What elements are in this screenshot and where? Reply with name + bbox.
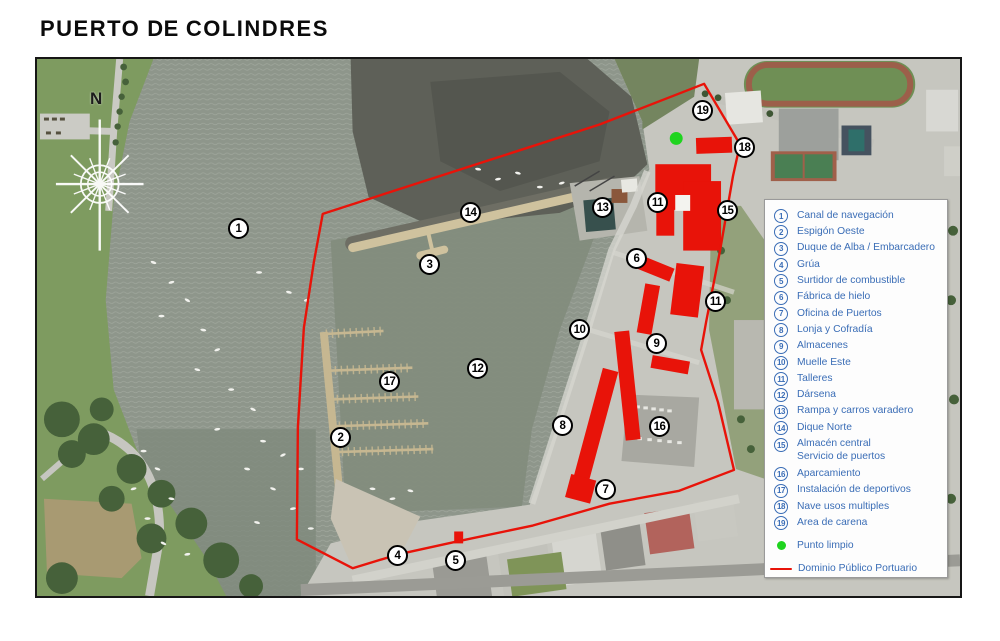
legend-item-label: Talleres (797, 373, 832, 386)
punto-limpio-icon (774, 541, 788, 550)
legend-items: 1Canal de navegación2Espigón Oeste3Duque… (774, 208, 941, 531)
legend-item-label: Almacén centralServicio de puertos (797, 438, 885, 463)
legend-item-19: 19Area de carena (774, 515, 941, 531)
legend-item-label: Dique Norte (797, 422, 852, 435)
legend-number-icon: 5 (774, 274, 788, 288)
legend-number-icon: 2 (774, 225, 788, 239)
legend-number-icon: 8 (774, 323, 788, 337)
title-part-2: DE (147, 16, 179, 41)
legend-item-label: Area de carena (797, 517, 867, 530)
legend-item-18: 18Nave usos multiples (774, 499, 941, 515)
legend-item-label: Lonja y Cofradía (797, 324, 873, 337)
legend-item-13: 13Rampa y carros varadero (774, 404, 941, 420)
legend-item-4: 4Grúa (774, 257, 941, 273)
legend-item-12: 12Dársena (774, 387, 941, 403)
legend-item-label: Grúa (797, 259, 820, 272)
legend-number-icon: 16 (774, 467, 788, 481)
legend-item-label: Duque de Alba / Embarcadero (797, 242, 935, 255)
legend-number-icon: 10 (774, 356, 788, 370)
legend-item-16: 16Aparcamiento (774, 466, 941, 482)
legend-number-icon: 9 (774, 340, 788, 354)
legend-item-14: 14Dique Norte (774, 420, 941, 436)
legend-number-icon: 12 (774, 388, 788, 402)
legend-item-6: 6Fábrica de hielo (774, 289, 941, 305)
legend-number-icon: 15 (774, 438, 788, 452)
legend-item-label: Instalación de deportivos (797, 484, 911, 497)
legend-item-label: Dársena (797, 389, 836, 402)
legend-number-icon: 11 (774, 372, 788, 386)
legend-item-label: Espigón Oeste (797, 226, 865, 239)
legend-item-label: Punto limpio (797, 540, 854, 553)
legend-item-8: 8Lonja y Cofradía (774, 322, 941, 338)
legend-number-icon: 14 (774, 421, 788, 435)
legend-item-label: Rampa y carros varadero (797, 405, 913, 418)
title-part-3: COLINDRES (186, 16, 329, 41)
legend-number-icon: 3 (774, 242, 788, 256)
legend-number-icon: 6 (774, 291, 788, 305)
punto-limpio-dot (670, 132, 683, 145)
red-line-icon (770, 568, 792, 571)
legend-number-icon: 13 (774, 405, 788, 419)
legend-number-icon: 17 (774, 484, 788, 498)
legend-number-icon: 19 (774, 516, 788, 530)
legend-item-5: 5Surtidor de combustible (774, 273, 941, 289)
page: PUERTODECOLINDRES (0, 0, 1000, 641)
legend-number-icon: 7 (774, 307, 788, 321)
legend-item-17: 17Instalación de deportivos (774, 482, 941, 498)
legend-item-1: 1Canal de navegación (774, 208, 941, 224)
legend-item-label: Almacenes (797, 340, 848, 353)
building-18-nave (696, 137, 732, 154)
legend-item-label: Muelle Este (797, 357, 851, 370)
legend-number-icon: 1 (774, 209, 788, 223)
legend-item-label: Dominio Público Portuario (798, 563, 917, 576)
legend-item-15: 15Almacén centralServicio de puertos (774, 436, 941, 466)
legend-item-label: Oficina de Puertos (797, 308, 882, 321)
compass-north-label: N (90, 89, 102, 109)
map-legend: 1Canal de navegación2Espigón Oeste3Duque… (764, 199, 948, 578)
legend-item-label: Fábrica de hielo (797, 291, 870, 304)
legend-item-11: 11Talleres (774, 371, 941, 387)
legend-item-2: 2Espigón Oeste (774, 224, 941, 240)
legend-item-label: Surtidor de combustible (797, 275, 905, 288)
legend-item-3: 3Duque de Alba / Embarcadero (774, 241, 941, 257)
title-part-1: PUERTO (40, 16, 140, 41)
page-title: PUERTODECOLINDRES (40, 16, 329, 42)
legend-item-dominio: Dominio Público Portuario (774, 560, 941, 577)
legend-item-label: Canal de navegación (797, 210, 894, 223)
legend-item-label: Nave usos multiples (797, 501, 889, 514)
legend-item-punto-limpio: Punto limpio (774, 537, 941, 554)
legend-item-label: Aparcamiento (797, 468, 861, 481)
legend-number-icon: 18 (774, 500, 788, 514)
legend-item-10: 10Muelle Este (774, 355, 941, 371)
legend-item-7: 7Oficina de Puertos (774, 306, 941, 322)
legend-item-9: 9Almacenes (774, 338, 941, 354)
legend-number-icon: 4 (774, 258, 788, 272)
